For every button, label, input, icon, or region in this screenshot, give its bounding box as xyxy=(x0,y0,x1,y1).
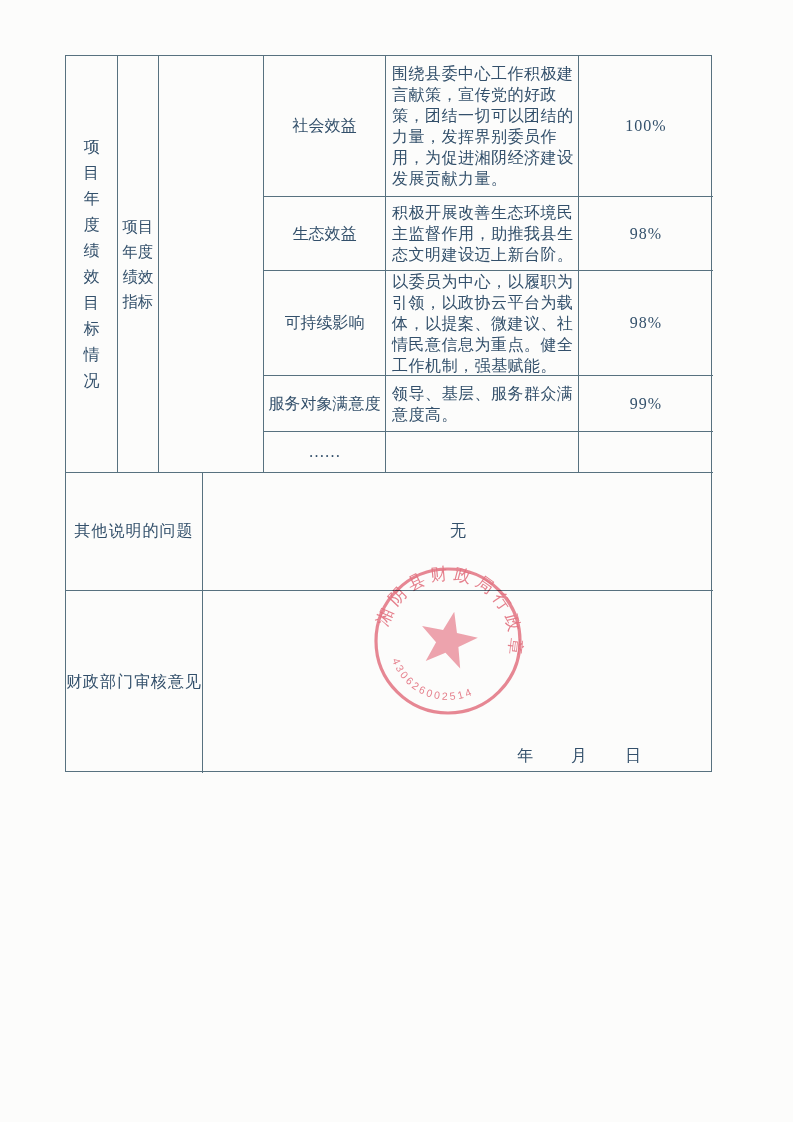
review-label-cell: 财政部门审核意见 xyxy=(66,591,203,773)
date-line: 年 月 日 xyxy=(517,746,643,767)
indicator-name: …… xyxy=(309,441,341,463)
indicator-value-cell: 99% xyxy=(579,376,713,432)
section-label: 项目年度绩效目标情况 xyxy=(82,134,102,394)
section-label-cell: 项目年度绩效目标情况 xyxy=(66,56,118,473)
indicator-description: 以委员为中心，以履职为引领，以政协云平台为载体，以提案、微建议、社情民意信息为重… xyxy=(392,271,574,376)
indicator-value-cell: 98% xyxy=(579,197,713,271)
indicator-value-cell: 100% xyxy=(579,56,713,197)
indicator-name-cell: 可持续影响 xyxy=(264,271,386,376)
indicator-name-cell: 服务对象满意度 xyxy=(264,376,386,432)
indicator-desc-cell: 以委员为中心，以履职为引领，以政协云平台为载体，以提案、微建议、社情民意信息为重… xyxy=(386,271,579,376)
indicator-description: 围绕县委中心工作积极建言献策，宣传党的好政策，团结一切可以团结的力量，发挥界别委… xyxy=(392,63,574,189)
indicator-name: 服务对象满意度 xyxy=(269,393,381,415)
other-issues-content: 无 xyxy=(450,521,466,542)
indicator-value: 98% xyxy=(630,225,662,243)
other-issues-content-cell: 无 xyxy=(203,473,713,591)
other-issues-label: 其他说明的问题 xyxy=(75,521,194,542)
indicator-desc-cell: 围绕县委中心工作积极建言献策，宣传党的好政策，团结一切可以团结的力量，发挥界别委… xyxy=(386,56,579,197)
indicator-name-cell: 生态效益 xyxy=(264,197,386,271)
indicator-value: 99% xyxy=(630,395,662,413)
indicator-name: 社会效益 xyxy=(293,115,357,137)
other-issues-label-cell: 其他说明的问题 xyxy=(66,473,203,591)
empty-span-cell xyxy=(159,56,264,473)
indicator-name-cell: 社会效益 xyxy=(264,56,386,197)
indicator-name-cell: …… xyxy=(264,432,386,473)
scanned-document-page: 项目年度绩效目标情况 项目年度绩效指标 社会效益 生态效益 可持续影响 服务对象… xyxy=(0,0,793,1122)
indicator-name: 生态效益 xyxy=(293,223,357,245)
subsection-label: 项目年度绩效指标 xyxy=(121,214,155,314)
indicator-description: 领导、基层、服务群众满意度高。 xyxy=(392,383,574,425)
indicator-value: 98% xyxy=(630,314,662,332)
performance-table: 项目年度绩效目标情况 项目年度绩效指标 社会效益 生态效益 可持续影响 服务对象… xyxy=(65,55,712,772)
indicator-desc-cell: 积极开展改善生态环境民主监督作用，助推我县生态文明建设迈上新台阶。 xyxy=(386,197,579,271)
indicator-value-cell xyxy=(579,432,713,473)
indicator-value-cell: 98% xyxy=(579,271,713,376)
indicator-desc-cell xyxy=(386,432,579,473)
review-content-cell: 年 月 日 xyxy=(203,591,713,773)
indicator-description: 积极开展改善生态环境民主监督作用，助推我县生态文明建设迈上新台阶。 xyxy=(392,202,574,265)
indicator-desc-cell: 领导、基层、服务群众满意度高。 xyxy=(386,376,579,432)
subsection-label-cell: 项目年度绩效指标 xyxy=(118,56,159,473)
review-label: 财政部门审核意见 xyxy=(66,672,202,693)
indicator-value: 100% xyxy=(625,117,666,135)
indicator-name: 可持续影响 xyxy=(285,312,365,334)
